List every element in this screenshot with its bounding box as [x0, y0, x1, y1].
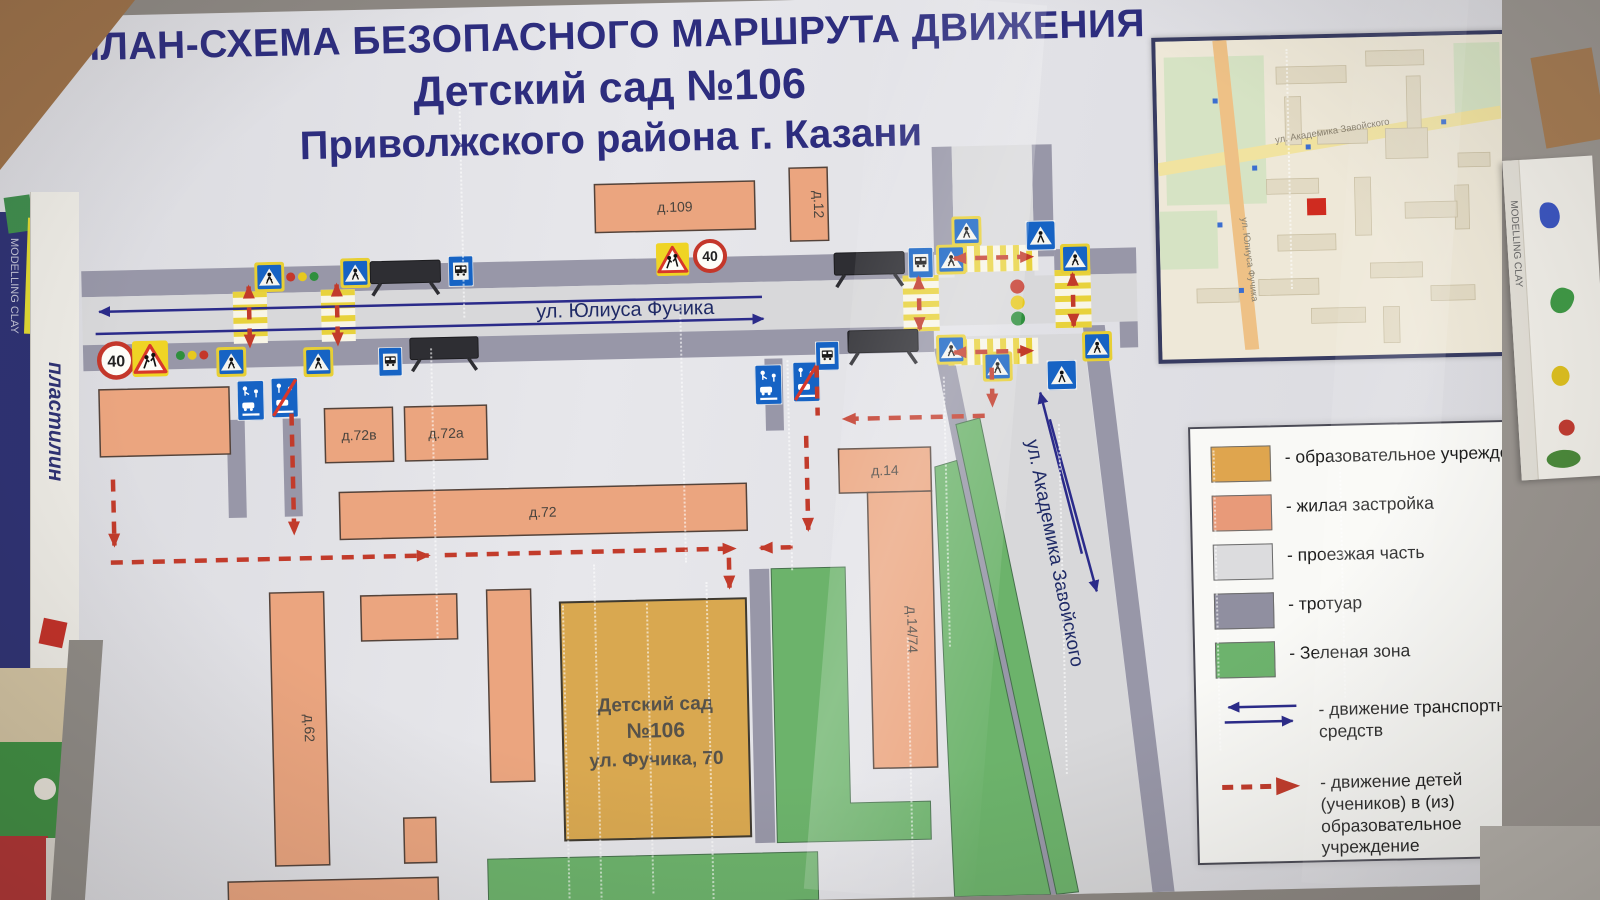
figure-blue — [1539, 202, 1561, 229]
children-warning-sign — [656, 242, 690, 276]
legend-swatch-education — [1210, 445, 1271, 482]
sidewalk — [1120, 321, 1139, 347]
building-label: д.72 — [529, 504, 557, 521]
pedestrian-crossing-sign — [1025, 220, 1056, 251]
route-plan-poster: ПЛАН-СХЕМА БЕЗОПАСНОГО МАРШРУТА ДВИЖЕНИЯ… — [0, 0, 1600, 900]
legend-swatch-sidewalk — [1214, 592, 1275, 629]
clay-box-blue-label: MODELLING CLAY — [8, 238, 20, 334]
park-area — [1159, 210, 1218, 269]
figure-red — [1558, 419, 1575, 436]
footpath — [749, 569, 775, 843]
building-label: д.62 — [301, 714, 318, 742]
children-route — [249, 286, 250, 346]
kindergarten-label-line2: №106 — [626, 719, 685, 743]
red-item — [0, 836, 48, 900]
building-label: д.72в — [341, 427, 376, 444]
bus-stop-sign — [815, 341, 839, 371]
bus-stop-sign — [448, 255, 474, 286]
bottom-right-wall-patch — [1480, 826, 1600, 900]
circle-decoration — [34, 778, 56, 800]
clay-box-white-spine: пластилин — [30, 192, 79, 670]
children-route — [445, 549, 735, 556]
kindergarten-block: Детский сад №106 ул. Фучика, 70 — [560, 598, 751, 840]
building — [404, 817, 437, 863]
building-label: д.12 — [811, 191, 828, 219]
legend-swatch-residential — [1212, 494, 1273, 531]
svg-text:40: 40 — [107, 353, 125, 370]
bus-stop-sign — [378, 347, 402, 377]
children-route — [817, 366, 818, 416]
children-route — [337, 284, 338, 344]
park-area — [1164, 55, 1267, 205]
vehicle-arrows-icon — [1216, 698, 1305, 732]
speed-limit-sign: 40 — [99, 343, 134, 378]
bus-shelter — [410, 337, 479, 372]
building-label: д.109 — [657, 198, 693, 215]
clay-box-white-label: пластилин — [43, 362, 67, 481]
children-warning-sign — [132, 340, 169, 377]
svg-text:40: 40 — [702, 248, 718, 264]
figure-yellow — [1551, 365, 1570, 386]
clay-box-right-label: MODELLING CLAY — [1508, 200, 1524, 288]
traffic-light-icon — [286, 272, 319, 282]
children-route — [1073, 274, 1074, 326]
building — [361, 594, 458, 641]
brand-logo-oval — [1546, 449, 1581, 469]
children-route — [761, 547, 793, 548]
kindergarten-label-line1: Детский сад — [597, 693, 713, 717]
building — [99, 387, 230, 457]
children-route — [111, 555, 429, 562]
pedestrian-crossing-sign — [216, 347, 247, 378]
main-street-label: ул. Юлиуса Фучика — [536, 297, 715, 323]
traffic-light-icon — [176, 350, 209, 360]
speed-limit-sign: 40 — [695, 241, 726, 272]
kindergarten-location-marker — [1307, 198, 1326, 215]
children-route — [729, 558, 730, 588]
pedestrian-crossing-sign — [1060, 243, 1091, 274]
residential-zone-sign — [237, 380, 265, 421]
pedestrian-crossing-sign — [340, 258, 371, 289]
building-d62 — [270, 592, 330, 866]
pedestrian-crossing-sign — [254, 262, 285, 293]
pedestrian-crossing-sign — [1082, 331, 1113, 362]
children-route — [806, 436, 808, 530]
building — [228, 877, 439, 900]
end-residential-zone-sign — [271, 377, 299, 418]
brand-logo-mark — [39, 618, 68, 648]
legend-swatch-green — [1215, 641, 1276, 678]
legend-swatch-roadway — [1213, 543, 1274, 580]
children-route-icon — [1218, 770, 1307, 802]
residential-zone-sign — [755, 364, 783, 405]
pedestrian-crossing-sign — [303, 347, 334, 378]
kindergarten-label-line3: ул. Фучика, 70 — [589, 748, 724, 772]
children-route — [113, 480, 114, 546]
pedestrian-crossing-sign — [1046, 360, 1077, 391]
figure-green — [1547, 285, 1577, 317]
building — [487, 589, 535, 782]
